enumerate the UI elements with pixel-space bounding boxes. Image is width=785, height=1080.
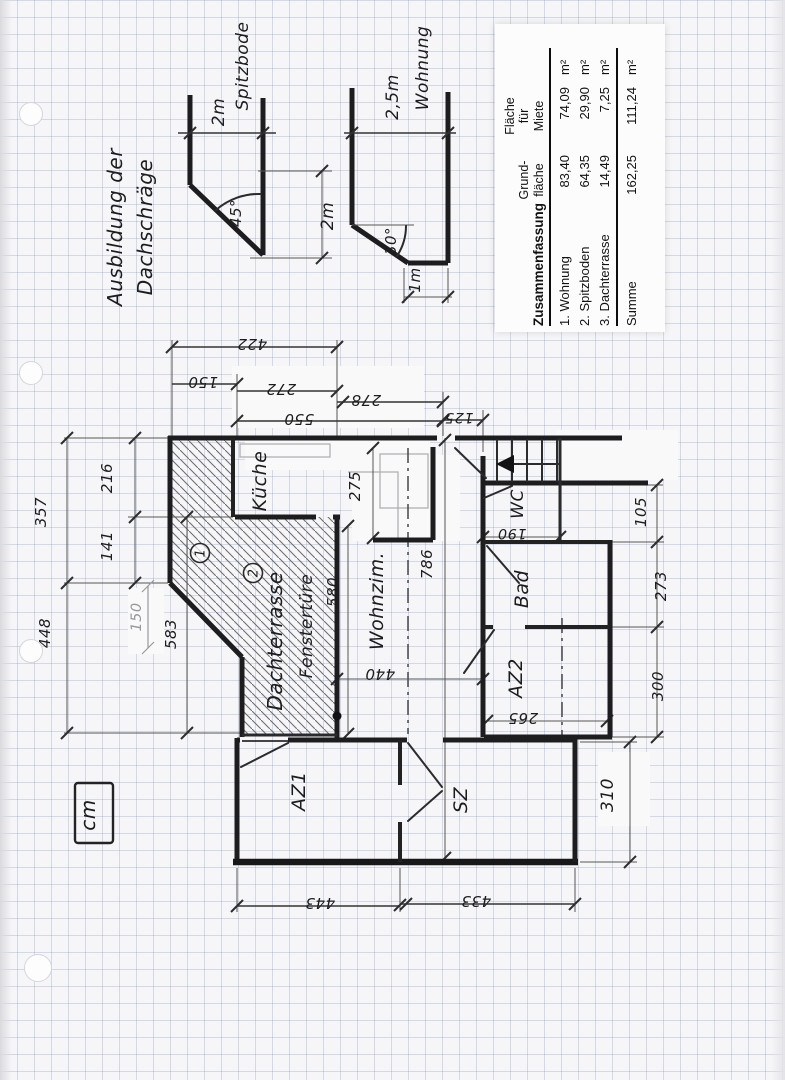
row-label: 1. Wohnung [555, 210, 575, 326]
room-label-kueche: Küche [249, 451, 271, 512]
roof-room-label: Wohnung [413, 26, 433, 111]
row-miete: 74,09 [555, 82, 575, 150]
row-miete: 7,25 [595, 82, 615, 150]
dim-440: 440 [365, 665, 395, 683]
room-label-az1: AZ1 [288, 771, 310, 813]
door-hinge-dot [333, 712, 342, 721]
row-miete: 29,90 [575, 82, 595, 150]
roof-angle-label: 45° [227, 199, 245, 227]
room-label-sz: SZ [450, 786, 472, 813]
col-header-flaeche-fuer-miete: Fläche für Miete [503, 82, 549, 150]
roof-width-label: 2m [209, 98, 229, 126]
dim-422: 422 [237, 335, 267, 353]
dim-141: 141 [98, 531, 116, 561]
title-note-line2: Dachschräge [133, 159, 157, 295]
col-header-grundflaeche: Grund- fläche [517, 150, 549, 210]
dim-278: 278 [351, 391, 381, 409]
dim-190: 190 [497, 525, 526, 541]
title-note: Ausbildung der Dachschräge [103, 147, 157, 308]
total-grundflaeche: 162,25 [622, 150, 642, 210]
dim-580: 580 [324, 577, 342, 607]
dim-275: 275 [346, 471, 364, 501]
marker-1: 1 [194, 549, 209, 558]
floor-plan: 1 2 Küche Wohnzim. WC Bad AZ2 AZ1 SZ Dac… [32, 335, 670, 912]
scanned-floor-plan-page: Ausbildung der Dachschräge 2m Spitzbode … [0, 0, 785, 1080]
room-label-az2: AZ2 [505, 658, 527, 700]
total-miete: 111,24 [622, 82, 642, 150]
unit-note-label: cm [76, 799, 100, 830]
row-grundflaeche: 83,40 [555, 150, 575, 210]
dim-150-top: 150 [188, 373, 218, 391]
unit-note-box: cm [75, 783, 113, 843]
az2-door-swing [464, 630, 494, 673]
summary-table: Zusammenfassung Grund- fläche Fläche für… [495, 24, 665, 332]
row-grundflaeche: 64,35 [575, 150, 595, 210]
row-unit: m² [575, 48, 595, 82]
summary-table-title: Zusammenfassung [531, 210, 549, 326]
row-label: 2. Spitzboden [575, 210, 595, 326]
room-label-wc: WC [508, 489, 528, 519]
dim-150-pencil: 150 [129, 602, 145, 631]
roof-diagram-wohnung: 2,5m Wohnung 30° 1m [344, 26, 456, 303]
dim-448: 448 [36, 618, 54, 648]
roof-room-label: Spitzbode [233, 22, 253, 111]
dim-105: 105 [632, 497, 650, 527]
roof-width-label: 2,5m [383, 74, 403, 120]
stairs [496, 440, 558, 481]
dim-265: 265 [508, 709, 538, 727]
room-label-wohnzimmer: Wohnzim. [366, 552, 388, 650]
marker-2: 2 [247, 569, 262, 578]
dim-310: 310 [598, 778, 618, 812]
row-unit: m² [595, 48, 615, 82]
az1-door-swing [241, 743, 288, 767]
dim-357: 357 [32, 497, 50, 527]
dim-125: 125 [444, 409, 473, 425]
dim-433: 433 [461, 892, 491, 910]
dim-272: 272 [266, 380, 296, 398]
dim-273: 273 [652, 571, 670, 601]
dim-216: 216 [98, 463, 116, 493]
row-unit: m² [555, 48, 575, 82]
dim-443: 443 [305, 894, 335, 912]
roof-bottom-label: 1m [406, 267, 424, 292]
roof-height-label: 2m [318, 202, 338, 230]
row-grundflaeche: 14,49 [595, 150, 615, 210]
title-note-line1: Ausbildung der [103, 147, 127, 308]
table-header-rule [549, 48, 551, 326]
dim-300: 300 [649, 671, 667, 701]
room-label-fenstertuere: Fenstertüre [297, 574, 317, 678]
sz-door-swings [408, 743, 442, 821]
sketch-layer: Ausbildung der Dachschräge 2m Spitzbode … [0, 0, 785, 1080]
roof-diagram-spitzboden: 2m Spitzbode 45° 2m [178, 22, 338, 264]
dim-583: 583 [162, 619, 180, 649]
total-label: Summe [622, 210, 642, 326]
row-label: 3. Dachterrasse [595, 210, 615, 326]
room-label-dachterrasse: Dachterrasse [263, 571, 287, 710]
total-unit: m² [622, 48, 642, 82]
dim-786: 786 [418, 549, 436, 579]
roof-angle-label: 30° [382, 227, 400, 255]
dim-550: 550 [284, 410, 314, 428]
stair-arrow-head [496, 455, 514, 473]
table-total-rule [616, 48, 618, 326]
room-label-bad: Bad [511, 569, 533, 608]
